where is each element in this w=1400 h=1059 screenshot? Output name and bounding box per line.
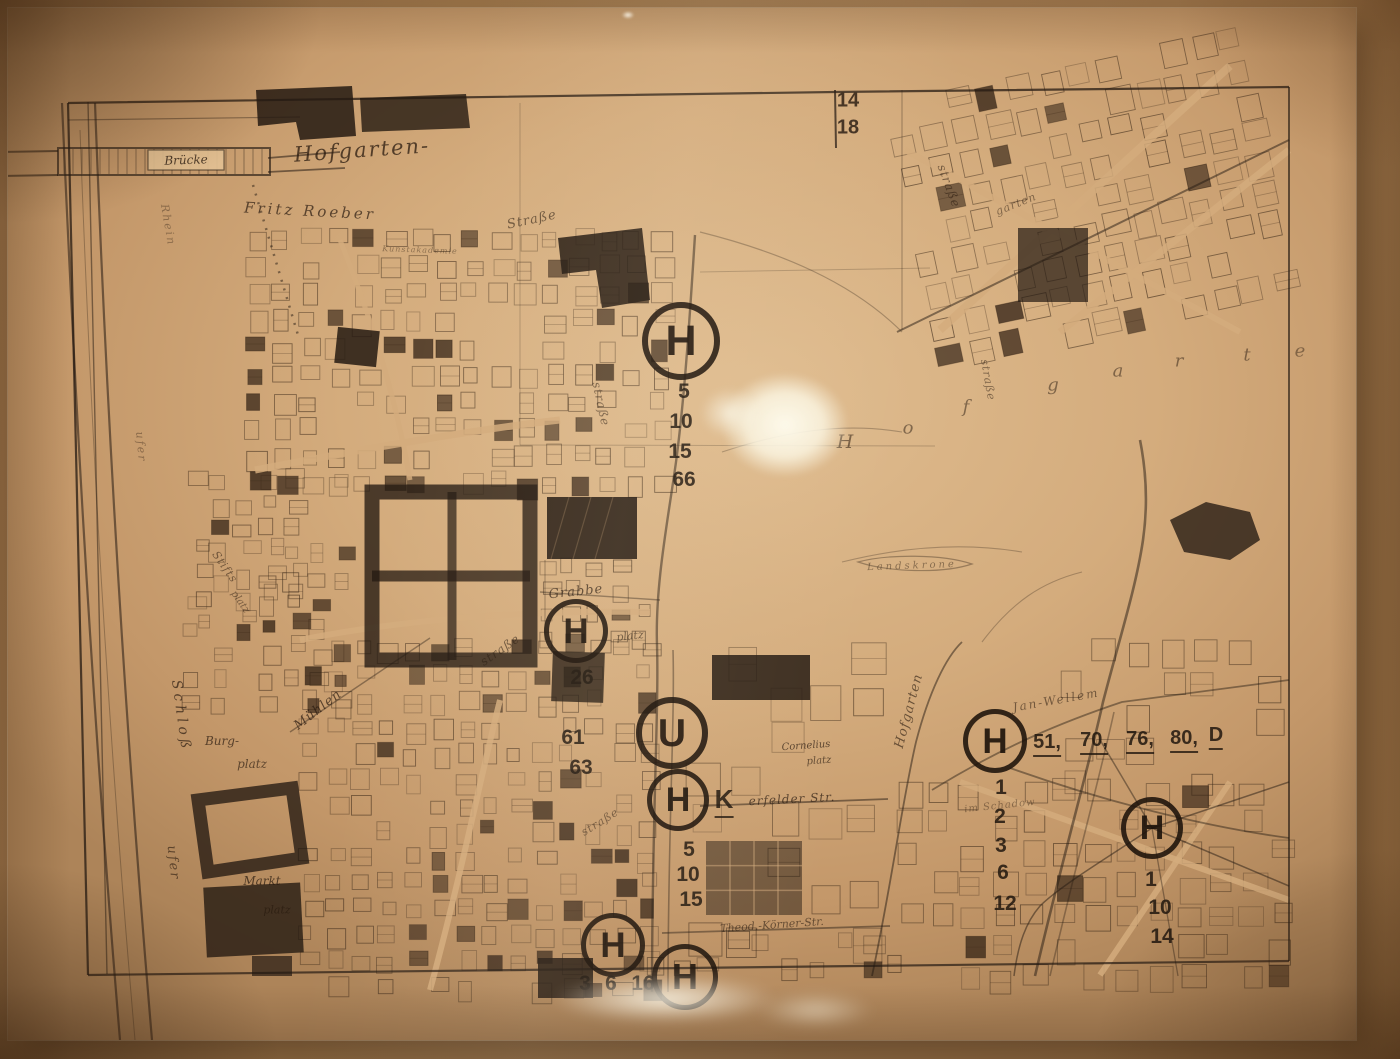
map-label: Stifts	[209, 549, 240, 586]
transit-line-number: D	[1209, 724, 1223, 750]
transit-line-number: 6	[605, 972, 617, 996]
map-label: o	[903, 418, 914, 439]
map-label: Kunstakademie	[382, 244, 458, 256]
map-label: Brücke	[164, 152, 208, 168]
map-label: r	[1175, 351, 1184, 372]
transit-stop-marker-h: H	[544, 599, 608, 663]
stop-symbol-h: H	[666, 783, 691, 817]
transit-line-number: 1	[1145, 868, 1157, 892]
map-label: f	[963, 397, 970, 418]
transit-stop-marker-h: H	[652, 944, 718, 1010]
transit-line-number: 14	[1150, 925, 1173, 949]
map-label: platz	[616, 628, 645, 644]
map-label: Hofgarten-	[293, 133, 431, 166]
map-label: 14	[837, 90, 859, 113]
map-label: Rhein	[158, 203, 178, 247]
photo-of-antique-city-map: BrückeHofgarten-Fritz RoeberStraßestraße…	[0, 0, 1400, 1059]
stop-symbol-h: H	[1140, 811, 1165, 845]
map-label: g	[1047, 375, 1059, 396]
map-label: straße	[478, 631, 523, 668]
transit-stop-marker-u: U	[636, 697, 708, 769]
transit-stop-marker-h: H	[647, 769, 709, 831]
transit-line-number: K	[715, 784, 734, 818]
map-label: straße	[589, 381, 612, 428]
stop-symbol-h: H	[600, 928, 625, 963]
map-sheet-inner: BrückeHofgarten-Fritz RoeberStraßestraße…	[8, 8, 1356, 1040]
map-label: Landskrone	[867, 559, 957, 573]
transit-line-number: 15	[668, 440, 691, 464]
map-label: Fritz Roeber	[244, 199, 377, 224]
transit-line-number: 66	[672, 468, 695, 492]
map-label: Burg-	[205, 734, 239, 748]
map-label: e	[1295, 341, 1306, 362]
map-label: Jan-Wellem	[1012, 685, 1101, 714]
map-label: t	[1243, 345, 1250, 366]
map-label: garten	[994, 190, 1039, 218]
map-label: Straße	[506, 207, 558, 232]
stop-symbol-h: H	[672, 959, 698, 995]
map-label: ufer	[164, 845, 183, 881]
transit-stop-marker-h: H	[581, 913, 645, 977]
map-label: platz	[228, 589, 251, 616]
map-label: Theod.-Körner-Str.	[720, 915, 824, 935]
transit-line-number: 76,	[1126, 728, 1154, 754]
transit-line-number: 70,	[1080, 729, 1108, 755]
map-label: straße	[978, 358, 998, 401]
transit-line-number: 15	[679, 888, 702, 912]
map-label: 18	[837, 117, 859, 140]
transit-line-number: 10	[1148, 896, 1171, 920]
map-label: Mühlen	[291, 687, 345, 733]
map-label: a	[1113, 361, 1124, 382]
transit-stop-marker-h: H	[1121, 797, 1183, 859]
map-label: Markt	[243, 874, 280, 888]
transit-line-number: 26	[570, 666, 593, 690]
transit-line-number: 1	[995, 776, 1007, 800]
transit-line-number: 6	[997, 861, 1009, 885]
transit-line-number: 10	[669, 410, 692, 434]
transit-line-number: 51,	[1033, 731, 1061, 757]
map-label: platz	[806, 755, 832, 768]
transit-stop-marker-h: H	[642, 302, 720, 380]
map-label: erfelder Str.	[748, 790, 835, 809]
transit-line-number: 2	[994, 805, 1006, 829]
transit-line-number: 10	[676, 863, 699, 887]
transit-line-number: 5	[678, 380, 690, 404]
map-label: Cornelius	[781, 739, 830, 753]
stop-symbol-h: H	[563, 614, 588, 649]
stop-symbol-h: H	[665, 320, 696, 363]
transit-line-number: 63	[569, 756, 592, 780]
map-label: ufer	[133, 431, 149, 463]
transit-line-number: 12	[993, 892, 1016, 916]
map-label: platz	[263, 904, 290, 917]
map-label: straße	[935, 162, 964, 209]
transit-line-number: 5	[683, 838, 695, 862]
map-overlay-layer: BrückeHofgarten-Fritz RoeberStraßestraße…	[8, 8, 1356, 1040]
map-label: platz	[237, 757, 267, 771]
map-label: Hofgarten	[892, 672, 926, 750]
stop-symbol-h: H	[982, 724, 1007, 759]
transit-stop-marker-h: H	[963, 709, 1027, 773]
transit-line-number: 3	[995, 834, 1007, 858]
map-label: H	[837, 431, 854, 453]
transit-line-number: 61	[561, 726, 584, 750]
transit-line-number: 3	[579, 972, 591, 996]
transit-line-number: 80,	[1170, 727, 1198, 753]
map-label: Schloß	[168, 679, 194, 753]
stop-symbol-u: U	[658, 714, 686, 753]
map-label: straße	[579, 805, 621, 838]
map-sheet: BrückeHofgarten-Fritz RoeberStraßestraße…	[8, 8, 1356, 1040]
